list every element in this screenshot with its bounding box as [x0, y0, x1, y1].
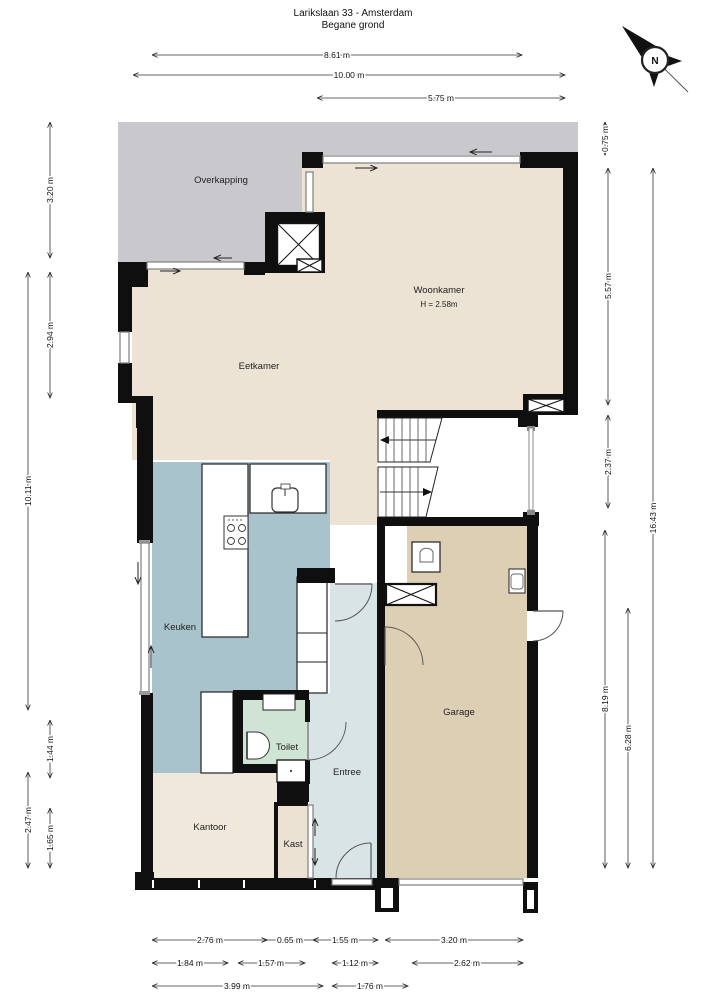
floorplan-svg: Overkapping Woonkamer H = 2.58m Eetkamer…: [0, 0, 707, 1000]
dim-left-3: 10.11 m: [23, 476, 33, 506]
dim-bottom-1-3: 1.55 m: [332, 935, 358, 945]
window-overkapping-south: [147, 262, 244, 269]
dim-left-4: 1.44 m: [45, 736, 55, 762]
kitchen-cabinet-column: [297, 577, 327, 693]
plan-title: Larikslaan 33 - Amsterdam Begane grond: [294, 8, 413, 31]
front-door-threshold: [332, 879, 372, 885]
dim-right-1: 0.75 m: [600, 126, 610, 152]
hall-cabinet: [263, 694, 295, 710]
label-entree: Entree: [333, 767, 361, 778]
label-woonkamer-height: H = 2.58m: [420, 300, 457, 309]
dim-bottom-2-3: 1.12 m: [342, 958, 368, 968]
floor-entree: [330, 583, 377, 878]
window-north-vertical: [306, 172, 313, 212]
dim-right-6: 16.43 m: [648, 503, 658, 534]
stair-void-railing: [529, 428, 533, 510]
title-line1: Larikslaan 33 - Amsterdam: [294, 8, 413, 19]
roof-overhang-strip: [310, 122, 578, 155]
staircase: [378, 418, 442, 517]
kitchen-island: [202, 464, 248, 637]
slider-cap: [139, 691, 150, 695]
dim-right-2: 5.57 m: [603, 273, 613, 299]
boiler-icon: [420, 548, 433, 562]
label-eetkamer: Eetkamer: [239, 361, 280, 372]
garage-door: [399, 879, 523, 885]
window-west: [120, 332, 129, 363]
garage-stub-notch: [527, 890, 534, 909]
dim-left-6: 1.65 m: [45, 825, 55, 851]
garage-stub-notch: [381, 888, 393, 908]
faucet-icon: [281, 484, 290, 489]
label-kast: Kast: [283, 839, 302, 850]
dim-left-1: 3.20 m: [45, 177, 55, 203]
window-north: [323, 156, 520, 163]
label-kantoor: Kantoor: [193, 822, 226, 833]
tall-cabinet: [201, 692, 233, 773]
dim-top-2: 10.00 m: [334, 70, 365, 80]
kast-sliding-door: [308, 805, 313, 878]
label-overkapping: Overkapping: [194, 175, 248, 186]
dim-bottom-1-1: 2.76 m: [197, 935, 223, 945]
dim-right-3: 2.37 m: [603, 449, 613, 475]
label-woonkamer: Woonkamer: [413, 285, 464, 296]
dim-top-3: 5.75 m: [428, 93, 454, 103]
railing-cap: [527, 510, 535, 515]
dim-bottom-1-4: 3.20 m: [441, 935, 467, 945]
compass-north-label: N: [651, 56, 658, 67]
dim-bottom-2-1: 1.84 m: [177, 958, 203, 968]
dim-bottom-1-2: 0.65 m: [277, 935, 303, 945]
dim-bottom-3-1: 3.99 m: [224, 981, 250, 991]
compass-rose-icon: N: [622, 26, 688, 92]
toilet-bowl-icon: [247, 732, 270, 759]
dim-right-4: 8.19 m: [600, 686, 610, 712]
label-garage: Garage: [443, 707, 475, 718]
dim-top-1: 8.61 m: [324, 50, 350, 60]
floor-corridor: [330, 410, 377, 525]
dim-bottom-2-4: 2.62 m: [454, 958, 480, 968]
floor-fills: [118, 122, 578, 878]
label-keuken: Keuken: [164, 622, 196, 633]
dim-bottom-3-2: 1.76 m: [357, 981, 383, 991]
sliding-door-west: [141, 543, 149, 693]
dim-left-2: 2.94 m: [45, 322, 55, 348]
label-toilet: Toilet: [276, 742, 299, 753]
dim-left-5: 2.47 m: [23, 807, 33, 833]
title-line2: Begane grond: [322, 20, 385, 31]
floorplan-page: Overkapping Woonkamer H = 2.58m Eetkamer…: [0, 0, 707, 1000]
dim-right-5: 6.28 m: [623, 725, 633, 751]
dim-bottom-2-2: 1.57 m: [258, 958, 284, 968]
